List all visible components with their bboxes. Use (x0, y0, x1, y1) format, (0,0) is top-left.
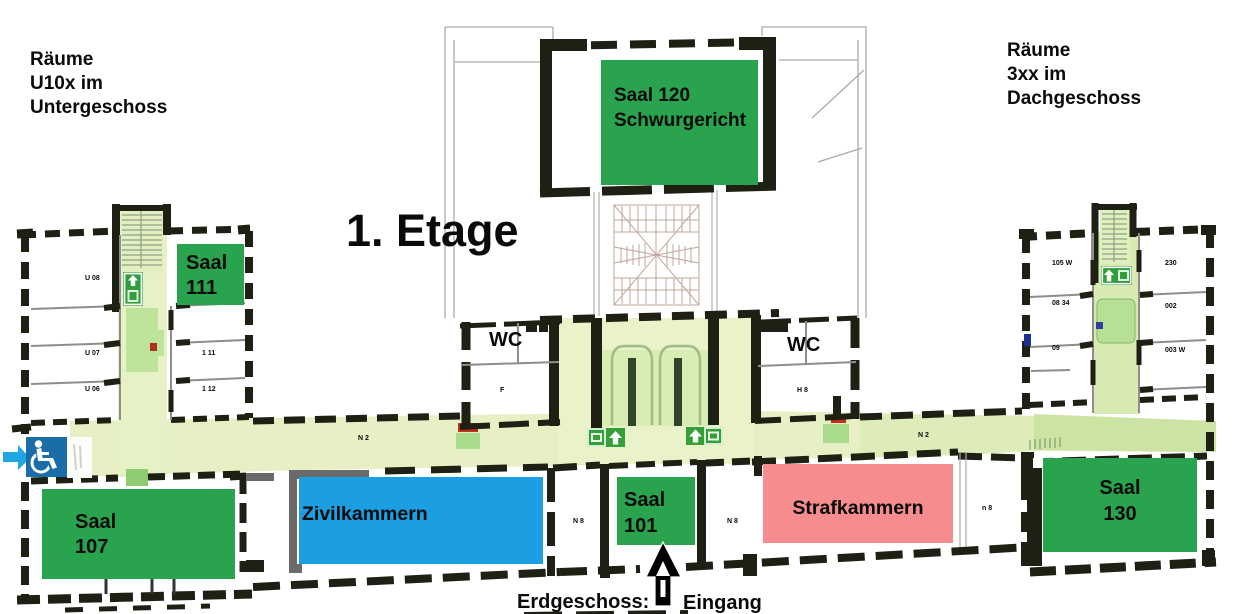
svg-text:H 8: H 8 (797, 387, 808, 394)
svg-text:Saal: Saal (75, 511, 116, 533)
svg-text:002: 002 (1165, 303, 1177, 310)
svg-text:Dachgeschoss: Dachgeschoss (1007, 88, 1141, 109)
svg-text:230: 230 (1165, 260, 1177, 267)
svg-text:Räume: Räume (30, 49, 93, 70)
svg-text:Untergeschoss: Untergeschoss (30, 97, 167, 118)
svg-text:08 34: 08 34 (1052, 300, 1070, 307)
svg-text:N 2: N 2 (918, 432, 929, 439)
svg-text:003 W: 003 W (1165, 347, 1186, 354)
svg-text:101: 101 (624, 515, 657, 537)
svg-text:107: 107 (75, 536, 108, 558)
svg-text:1 11: 1 11 (202, 350, 215, 357)
svg-text:Zivilkammern: Zivilkammern (302, 503, 428, 525)
svg-text:WC: WC (787, 334, 820, 356)
svg-text:N 8: N 8 (727, 518, 738, 525)
svg-text:Saal 120: Saal 120 (614, 85, 690, 106)
svg-text:U 08: U 08 (85, 275, 100, 282)
svg-text:Saal: Saal (624, 489, 665, 511)
svg-text:09: 09 (1052, 345, 1060, 352)
svg-text:Saal: Saal (186, 252, 227, 274)
svg-text:U10x im: U10x im (30, 73, 103, 94)
svg-text:Saal: Saal (1099, 477, 1140, 499)
svg-text:Schwurgericht: Schwurgericht (614, 110, 747, 131)
svg-text:F: F (500, 387, 505, 394)
svg-text:U 06: U 06 (85, 386, 100, 393)
svg-text:105 W: 105 W (1052, 260, 1073, 267)
svg-text:N 2: N 2 (358, 435, 369, 442)
svg-text:N 8: N 8 (573, 518, 584, 525)
svg-text:111: 111 (186, 277, 217, 299)
svg-text:Strafkammern: Strafkammern (792, 497, 923, 519)
svg-text:1. Etage: 1. Etage (346, 205, 519, 256)
svg-text:130: 130 (1103, 503, 1136, 525)
svg-text:n 8: n 8 (982, 505, 992, 512)
svg-text:Eingang: Eingang (683, 592, 762, 614)
svg-text:Räume: Räume (1007, 40, 1070, 61)
svg-text:WC: WC (489, 329, 522, 351)
svg-text:1 12: 1 12 (202, 386, 216, 393)
svg-text:3xx im: 3xx im (1007, 64, 1066, 85)
svg-text:Erdgeschoss:: Erdgeschoss: (517, 591, 649, 613)
svg-text:U 07: U 07 (85, 350, 100, 357)
